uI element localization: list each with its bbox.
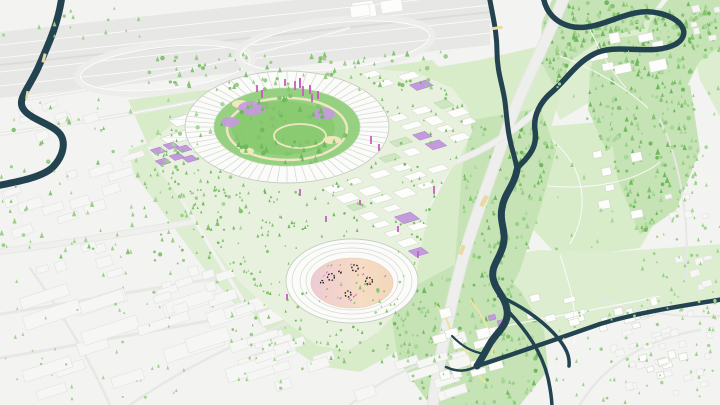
aerial-map-canvas [0, 0, 720, 405]
masterplan-illustration [0, 0, 720, 405]
event-lawn [221, 117, 239, 127]
park-plaza [323, 136, 341, 144]
park-ring-north [185, 71, 389, 183]
